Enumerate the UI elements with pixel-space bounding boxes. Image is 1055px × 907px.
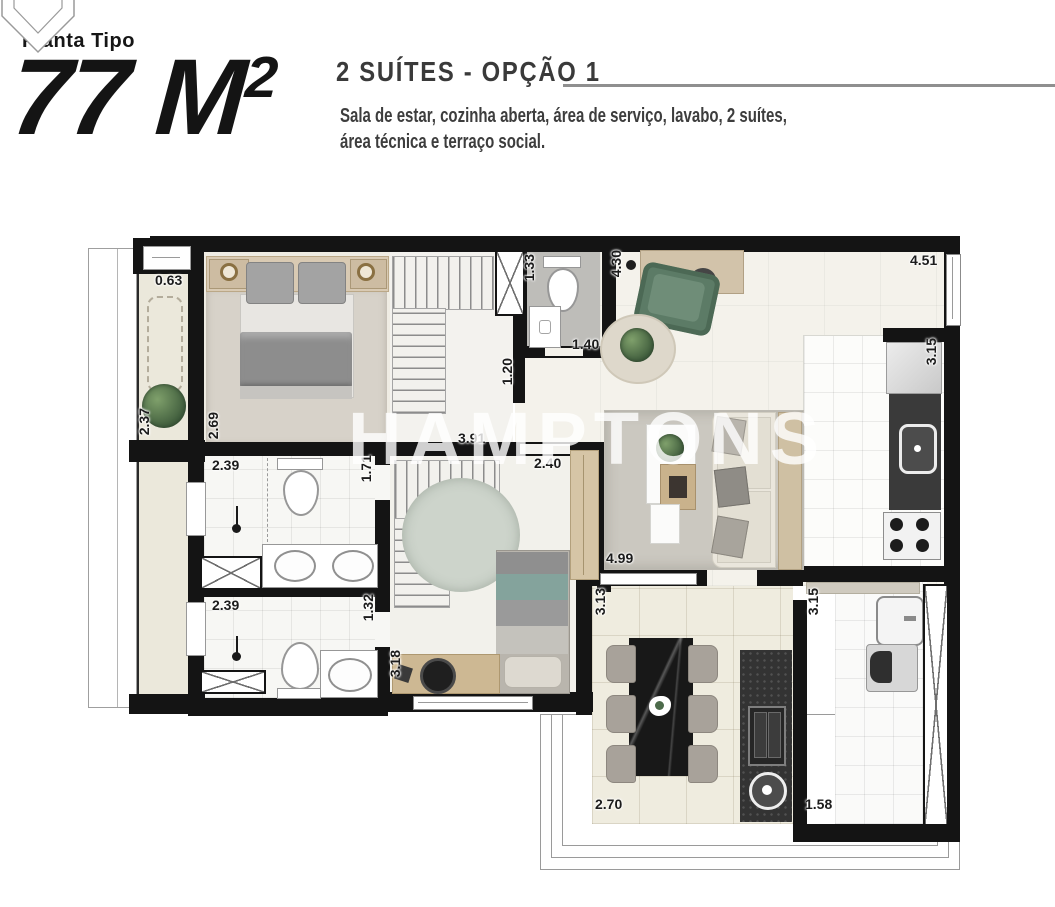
service-counter-strip: [806, 582, 920, 594]
wall-kitchen-service: [800, 566, 958, 582]
washing-machine: [876, 596, 924, 646]
suite1-pillow-1: [246, 262, 294, 304]
bath2-shower-head-icon: [232, 652, 241, 661]
bath1-sink-right: [332, 550, 374, 582]
dim-suite2-entry: 2.40: [534, 456, 561, 471]
dining-chair-r2: [688, 695, 718, 733]
ac-unit-box: [143, 246, 191, 270]
external-strip-line: [117, 249, 118, 707]
sofa-pillow-1: [711, 416, 746, 456]
dim-service-width: 1.58: [805, 797, 832, 812]
suite1-blanket: [240, 386, 352, 399]
dim-bath1-depth: 1.71: [359, 455, 374, 482]
wall-dining-left-chunk: [533, 692, 593, 712]
door-gap-bath1: [375, 465, 390, 500]
dim-suite2-width: 3.91: [458, 431, 485, 446]
dining-chair-l2: [606, 695, 636, 733]
lavabo-sink: [529, 306, 561, 348]
sofa-pillow-3: [711, 516, 749, 559]
suite2-bed-sheet: [496, 626, 568, 654]
sofa-pillow-2: [714, 466, 750, 508]
stairs-upper-turn: [392, 308, 446, 414]
dining-centerpiece: [649, 696, 671, 716]
dining-chair-r3: [688, 745, 718, 783]
island-cooktop: [748, 706, 786, 766]
coffee-table-small: [650, 504, 680, 544]
dim-suite2-depth: 3.18: [388, 650, 403, 677]
shaft-bath1: [200, 556, 262, 590]
corner-arrow-icon: [0, 0, 80, 60]
dim-balcony-width: 0.63: [155, 273, 182, 288]
external-wall-strip: [88, 248, 137, 708]
dim-lavabo-depth: 1.40: [572, 337, 599, 352]
wall-living-dining-b: [757, 570, 803, 586]
dining-chair-l3: [606, 745, 636, 783]
window-right-top: [946, 254, 961, 326]
coffee-table-plant: [656, 434, 684, 462]
wall-top: [150, 236, 960, 252]
shaft-bath2: [200, 670, 266, 694]
suite2-bed-fold: [496, 552, 568, 574]
laundry-tank: [866, 644, 918, 692]
stairs-upper-run: [392, 256, 494, 310]
dim-service-depth: 3.15: [806, 588, 821, 615]
vent-left-2: [186, 602, 206, 656]
dim-living-width: 4.99: [606, 551, 633, 566]
bath2-toilet-tank: [277, 688, 321, 699]
shaft-service: [923, 584, 949, 826]
bath2-sink: [328, 658, 372, 692]
dim-balcony-depth: 2.37: [137, 408, 152, 435]
bath1-shower-stem: [236, 506, 238, 526]
bath1-shower-head-icon: [232, 524, 241, 533]
door-gap-bath2: [375, 612, 390, 647]
dining-table: [629, 638, 693, 776]
suite1-pillow-2: [298, 262, 346, 304]
bath2-toilet-bowl: [281, 642, 319, 690]
hall-floor: [515, 348, 602, 456]
window-suite2: [413, 696, 533, 710]
dim-bath2-width: 2.39: [212, 598, 239, 613]
suite1-duvet: [240, 332, 352, 388]
kitchen-stove: [883, 512, 941, 560]
bath1-glass-line: [267, 458, 269, 542]
floorplan-page: Planta Tipo 77 M2 2 SUÍTES - OPÇÃO 1 Sal…: [0, 0, 1055, 907]
balcony-table-outline: [147, 296, 183, 392]
suite2-bed-teal: [496, 574, 568, 600]
island-counter: [740, 650, 792, 822]
dim-hall-width: 1.20: [500, 358, 515, 385]
dim-sala-width: 4.51: [910, 253, 937, 268]
dim-dining-depth: 3.13: [593, 588, 608, 615]
floor-plan: 0.63 2.37 2.69 2.39 1.71 3.91 2.40 1.33 …: [0, 0, 1055, 907]
dim-kitchen-depth: 3.15: [924, 338, 939, 365]
dining-chair-l1: [606, 645, 636, 683]
door-gap-suite2-entry: [520, 444, 570, 454]
suite2-wardrobe: [570, 450, 599, 580]
dim-sala-depth: 4.30: [609, 250, 624, 277]
wall-bottom-left: [188, 698, 388, 716]
window-living: [600, 573, 697, 585]
dim-dining-width: 2.70: [595, 797, 622, 812]
lavabo-toilet-tank: [543, 256, 581, 268]
vent-left-1: [186, 482, 206, 536]
floor-lamp-icon: [626, 260, 636, 270]
suite2-desk-chair: [420, 658, 456, 694]
suite1-lamp-left-icon: [220, 263, 238, 281]
bath1-toilet-tank: [277, 458, 323, 470]
dining-chair-r1: [688, 645, 718, 683]
wall-balcony-mid: [129, 440, 205, 462]
dim-bath1-width: 2.39: [212, 458, 239, 473]
sofa-console: [778, 412, 802, 570]
wall-dining-service: [793, 600, 807, 824]
dim-lavabo-width: 1.33: [522, 254, 537, 281]
suite2-pillow: [504, 656, 562, 688]
suite2-bed-gray: [496, 600, 568, 626]
wall-bottom-right: [793, 824, 958, 842]
suite1-lamp-right-icon: [357, 263, 375, 281]
dim-suite1-depth: 2.69: [206, 412, 221, 439]
nook-plant: [620, 328, 654, 362]
bath1-sink-left: [274, 550, 316, 582]
dim-bath2-depth: 1.32: [361, 594, 376, 621]
island-round-sink: [749, 772, 787, 810]
kitchen-sink: [899, 424, 937, 474]
